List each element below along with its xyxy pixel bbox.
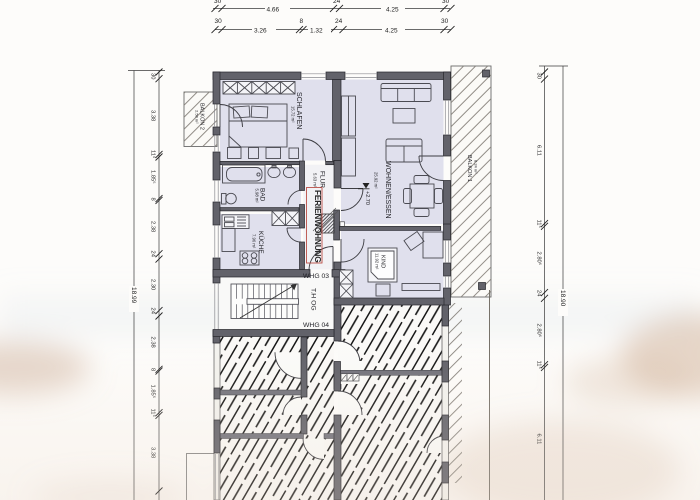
svg-text:11⁶: 11⁶ (150, 150, 157, 159)
svg-text:FLUR: FLUR (319, 171, 326, 188)
svg-text:4.25: 4.25 (385, 28, 398, 35)
svg-text:2.58 m²: 2.58 m² (195, 110, 200, 124)
svg-text:3.38: 3.38 (150, 110, 156, 121)
svg-text:30: 30 (536, 73, 542, 79)
svg-text:24: 24 (150, 308, 156, 315)
svg-text:6.11: 6.11 (536, 145, 542, 156)
svg-text:2.80⁵: 2.80⁵ (536, 324, 543, 338)
svg-text:WHG 03: WHG 03 (303, 273, 329, 280)
svg-text:11⁵: 11⁵ (536, 220, 543, 229)
svg-text:30: 30 (214, 0, 222, 5)
svg-text:+2.70: +2.70 (364, 191, 370, 205)
svg-text:18.90: 18.90 (559, 290, 566, 307)
svg-text:30: 30 (441, 18, 449, 25)
svg-text:8: 8 (150, 198, 156, 201)
svg-text:FERIENWOHNUNG: FERIENWOHNUNG (313, 190, 323, 263)
svg-text:1.85⁵: 1.85⁵ (150, 170, 157, 184)
svg-text:11.92 m²: 11.92 m² (375, 253, 380, 270)
svg-text:5.98 m²: 5.98 m² (255, 189, 260, 204)
svg-text:3.26: 3.26 (254, 28, 267, 35)
svg-text:1.32: 1.32 (310, 28, 323, 35)
svg-text:2.30: 2.30 (150, 279, 156, 290)
svg-text:2.80⁵: 2.80⁵ (536, 252, 543, 266)
svg-text:2.38: 2.38 (150, 221, 156, 232)
svg-text:30: 30 (150, 73, 156, 79)
svg-text:WOHNEN/ESSEN: WOHNEN/ESSEN (384, 161, 391, 219)
svg-text:25.92 m²: 25.92 m² (374, 172, 379, 189)
svg-text:30: 30 (215, 18, 223, 25)
svg-text:24: 24 (150, 251, 156, 258)
svg-text:24: 24 (335, 18, 343, 25)
svg-text:8: 8 (300, 18, 304, 25)
svg-text:4.25: 4.25 (386, 6, 399, 13)
svg-text:5.63 m²: 5.63 m² (313, 173, 318, 188)
svg-text:8.24 m²: 8.24 m² (474, 160, 479, 174)
svg-text:24: 24 (536, 290, 542, 297)
svg-text:KÜCHE: KÜCHE (257, 231, 265, 254)
svg-text:24: 24 (333, 0, 341, 5)
svg-text:WHG 04: WHG 04 (303, 322, 329, 329)
svg-text:T.H OG: T.H OG (310, 288, 317, 311)
svg-text:7.96 m²: 7.96 m² (252, 234, 257, 249)
svg-text:30: 30 (442, 0, 450, 5)
svg-text:4.66: 4.66 (267, 6, 280, 13)
svg-text:15.72 m²: 15.72 m² (291, 106, 296, 123)
svg-text:BALKON 1: BALKON 1 (466, 155, 472, 182)
svg-text:18.99: 18.99 (130, 287, 137, 304)
